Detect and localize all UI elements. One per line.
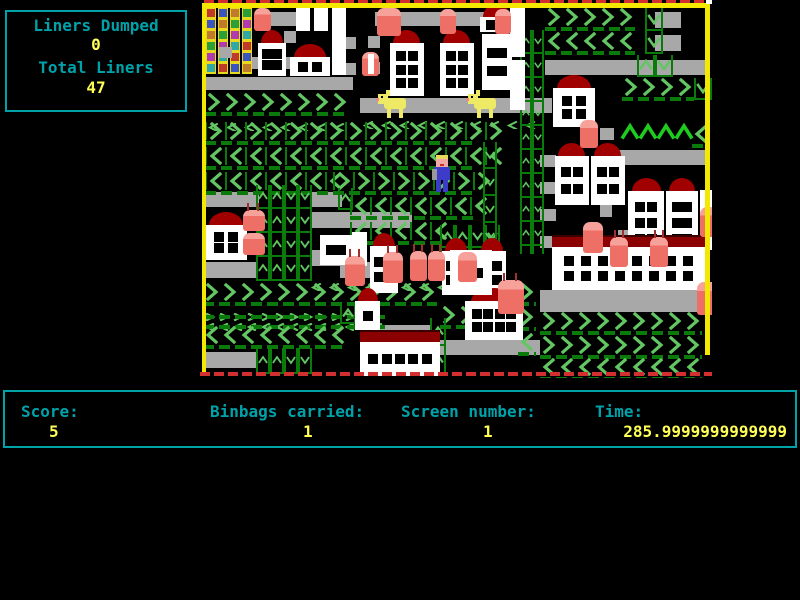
up-chevron-icon (342, 303, 354, 324)
building (390, 30, 424, 96)
flats-window (207, 64, 215, 72)
chevron-icon (245, 316, 259, 324)
down-chevron-icon (300, 257, 310, 281)
chevron-icon (259, 306, 273, 314)
liner-stripe (368, 54, 374, 74)
binbags-label: Binbags carried: (210, 402, 364, 421)
window (562, 109, 572, 119)
chevron-row-l (545, 32, 635, 50)
building-body (296, 5, 310, 31)
building-roof (209, 212, 243, 225)
dog-eye (471, 96, 473, 98)
window (497, 66, 507, 76)
chevron-row-r (333, 172, 493, 190)
building-body (258, 43, 286, 76)
chevron-icon (666, 312, 684, 330)
building-body (314, 5, 328, 31)
down-chevron-icon (485, 196, 495, 223)
window (396, 51, 406, 61)
flats-column (230, 7, 240, 74)
building-body (390, 43, 424, 96)
dog-leg (489, 109, 493, 118)
chevron-icon (640, 78, 658, 96)
building (552, 235, 705, 290)
building-body (332, 5, 346, 31)
binbag (458, 252, 477, 282)
flats-building (206, 7, 254, 74)
binbag-antenna (247, 203, 249, 211)
window (682, 218, 692, 228)
dog-sprite (378, 92, 410, 118)
building (332, 5, 346, 31)
flats-window (207, 20, 215, 28)
chevron-icon (325, 147, 345, 165)
flats-window (207, 31, 215, 39)
chevron-icon (485, 122, 505, 140)
chevron-icon (405, 122, 425, 140)
chevron-icon (666, 336, 684, 354)
binbag-antenna (257, 203, 259, 211)
total-liners-label: Total Liners (7, 58, 185, 77)
chevron-icon (545, 8, 563, 26)
dog-leg (387, 109, 391, 118)
chevron-icon (259, 93, 277, 111)
chevron-icon (311, 326, 329, 344)
track-dash-strip (545, 27, 635, 31)
flats-window (207, 42, 215, 50)
chevron-icon (231, 306, 245, 314)
binbag-antenna (358, 249, 360, 257)
binbag (650, 237, 668, 267)
window (363, 311, 373, 321)
building-body (510, 60, 525, 110)
chevron-icon (315, 316, 329, 324)
up-chevron-icon (258, 257, 268, 281)
chevron-icon (465, 122, 485, 140)
window (576, 96, 586, 106)
down-chevron-icon (286, 209, 296, 233)
flats-window (231, 20, 239, 28)
down-chevron-icon (286, 348, 296, 374)
vertical-track-down (284, 348, 298, 374)
building (296, 5, 310, 31)
chevron-row-u (620, 122, 692, 142)
chevron-icon (617, 8, 635, 26)
chevron-icon (599, 8, 617, 26)
chevron-icon (599, 32, 617, 50)
binbag-antenna (515, 273, 517, 281)
chevron-icon (676, 78, 694, 96)
window (666, 271, 676, 281)
binbag-antenna (662, 230, 664, 238)
building (205, 212, 247, 260)
chevron-icon (617, 32, 635, 50)
chevron-icon (612, 336, 630, 354)
window (336, 245, 346, 255)
chevron-icon (648, 312, 666, 330)
dog-nose (376, 98, 379, 101)
chevron-icon (225, 172, 245, 190)
conveyor-belt (540, 290, 698, 312)
binbag (498, 280, 524, 314)
chevron-icon (313, 93, 331, 111)
player-arm (432, 169, 437, 180)
down-chevron-icon (300, 185, 310, 209)
up-chevron-icon (258, 348, 268, 374)
dog-nose (466, 98, 469, 101)
window (598, 256, 608, 266)
score-label: Score: (21, 402, 79, 421)
building-body (591, 156, 625, 205)
flats-window (231, 53, 239, 61)
chevron-icon (265, 147, 285, 165)
conveyor-belt (368, 36, 380, 48)
window (492, 261, 502, 271)
flats-window (243, 42, 251, 50)
binbag (583, 222, 603, 253)
up-chevron-icon (340, 188, 351, 210)
flats-window (243, 53, 251, 61)
chevron-icon (622, 78, 640, 96)
chevron-icon (275, 283, 293, 301)
building (258, 30, 286, 76)
window (635, 218, 645, 228)
vertical-track-up (338, 188, 353, 210)
building (355, 288, 380, 330)
chevron-icon (350, 197, 370, 215)
window (647, 218, 657, 228)
building-roof (358, 288, 378, 301)
game-area[interactable] (200, 0, 712, 378)
binbag-antenna (503, 273, 505, 281)
flats-window (219, 64, 227, 72)
playfield-corner-notch (706, 0, 712, 4)
player-leg (443, 180, 448, 192)
building-body (510, 5, 525, 57)
chevron-icon (558, 312, 576, 330)
chevron-icon (453, 172, 473, 190)
dog-ear (476, 90, 480, 96)
building-roof (557, 75, 591, 88)
down-chevron-icon (485, 142, 495, 169)
window (632, 256, 642, 266)
dog-sprite (468, 92, 500, 118)
chevron-icon (413, 172, 433, 190)
chevron-icon (275, 326, 293, 344)
chevron-icon (301, 316, 315, 324)
window (615, 271, 625, 281)
game-screen: Liners Dumped 0 Total Liners 47 Score: 5… (0, 0, 800, 600)
chevron-icon (225, 147, 245, 165)
chevron-row-r (540, 336, 702, 354)
window (649, 271, 659, 281)
chevron-icon (563, 32, 581, 50)
chevron-icon (315, 306, 329, 314)
window (472, 322, 482, 332)
up-chevron-icon (272, 209, 282, 233)
window (214, 243, 224, 253)
player-leg (436, 180, 441, 192)
down-chevron-icon (286, 185, 296, 209)
up-chevron-icon (639, 55, 653, 77)
window (487, 48, 497, 58)
up-chevron-icon (272, 257, 282, 281)
building (332, 31, 346, 75)
player-sprite (432, 155, 452, 193)
building-roof (632, 178, 661, 191)
chevron-icon (293, 326, 311, 344)
building-body (205, 225, 247, 260)
building-body (290, 57, 330, 76)
building (440, 30, 474, 96)
up-chevron-icon (272, 233, 282, 257)
chevron-icon (305, 122, 325, 140)
window (683, 256, 693, 266)
building-roof (294, 44, 326, 57)
window (573, 167, 583, 177)
vertical-track-down (298, 348, 312, 374)
flats-window (207, 9, 215, 17)
flats-window (243, 31, 251, 39)
building (510, 60, 525, 110)
chevron-icon (225, 122, 245, 140)
liners-dumped-value: 0 (7, 35, 185, 54)
chevron-icon (245, 122, 265, 140)
window (446, 65, 456, 75)
building-roof (669, 178, 695, 191)
track-dash-strip (205, 141, 475, 145)
chevron-icon (326, 276, 344, 284)
window (573, 184, 583, 194)
chevron-icon (329, 326, 347, 344)
liners-hud-panel: Liners Dumped 0 Total Liners 47 (5, 10, 187, 112)
flats-column (242, 7, 252, 74)
binbag-antenna (439, 244, 441, 252)
dog-leg (477, 109, 481, 118)
dog-eye (381, 96, 383, 98)
window (581, 271, 591, 281)
binbag (254, 8, 271, 31)
chevron-icon (257, 326, 275, 344)
window (561, 167, 571, 177)
chevron-icon (385, 122, 405, 140)
chevron-icon (414, 114, 432, 122)
vertical-track-up (256, 348, 270, 374)
building-body (440, 43, 474, 96)
chevron-icon (365, 122, 385, 140)
window (272, 60, 282, 70)
flats-window (219, 9, 227, 17)
down-chevron-icon (647, 31, 661, 54)
screen-number-value: 1 (483, 422, 493, 441)
vertical-track-down (298, 185, 312, 281)
chevron-icon (612, 312, 630, 330)
screen-number-label: Screen number: (401, 402, 536, 421)
binbag (243, 210, 265, 231)
track-dash-strip (350, 216, 476, 220)
track-dash-strip (540, 331, 702, 335)
flats-window (207, 53, 215, 61)
chevron-icon (432, 114, 450, 122)
flats-window (231, 64, 239, 72)
down-chevron-icon (534, 198, 542, 222)
down-chevron-icon (534, 30, 542, 54)
building (591, 143, 625, 205)
chevron-icon (239, 283, 257, 301)
flats-window (231, 42, 239, 50)
flats-window (219, 31, 227, 39)
window (632, 271, 642, 281)
building (314, 5, 328, 31)
vertical-track-up (340, 303, 356, 324)
track-dash-strip (518, 352, 536, 356)
chevron-icon (325, 122, 345, 140)
chevron-icon (295, 93, 313, 111)
chevron-icon (239, 326, 257, 344)
window (446, 51, 456, 61)
conveyor-belt (600, 205, 612, 217)
window (483, 322, 493, 332)
down-chevron-icon (485, 169, 495, 196)
chevron-icon (331, 93, 349, 111)
chevron-icon (345, 147, 365, 165)
down-chevron-icon (534, 78, 542, 102)
score-value: 5 (49, 422, 59, 441)
chevron-icon (273, 316, 287, 324)
building-body (552, 247, 705, 290)
flats-window (219, 20, 227, 28)
window (408, 78, 418, 88)
chevron-row-l (205, 147, 505, 165)
up-chevron-icon (272, 185, 282, 209)
chevron-row-l (350, 197, 490, 215)
binbag-antenna (654, 230, 656, 238)
window (576, 109, 586, 119)
chevron-icon (465, 147, 485, 165)
building (360, 330, 440, 376)
window (497, 48, 507, 58)
window (683, 271, 693, 281)
binbag (383, 252, 403, 283)
window (396, 65, 406, 75)
binbag (377, 8, 401, 36)
chevron-icon (285, 147, 305, 165)
flats-gray-notch (219, 47, 232, 58)
chevron-icon (353, 172, 373, 190)
chevron-icon (305, 147, 325, 165)
binbag (428, 251, 445, 281)
chevron-icon (594, 312, 612, 330)
binbag (580, 120, 598, 148)
status-bar: Score: 5 Binbags carried: 1 Screen numbe… (3, 390, 797, 448)
window (495, 322, 505, 332)
vertical-track-down (655, 55, 673, 77)
chevron-icon (648, 336, 666, 354)
building-body (355, 301, 380, 330)
vertical-track-down (483, 142, 497, 252)
playfield-bottom-red-dashes (200, 372, 712, 376)
time-label: Time: (595, 402, 643, 421)
flats-column (206, 7, 216, 74)
down-chevron-icon (657, 55, 671, 77)
chevron-row-l (203, 326, 347, 344)
window (382, 354, 392, 364)
binbag (362, 52, 379, 76)
chevron-icon (425, 122, 445, 140)
vertical-track-down (645, 8, 663, 54)
conveyor-belt (203, 352, 257, 368)
flats-window (243, 20, 251, 28)
chevron-icon (265, 122, 285, 140)
chevron-icon (205, 172, 225, 190)
chevron-icon (545, 32, 563, 50)
window (635, 202, 645, 212)
chevron-icon (360, 114, 378, 122)
down-chevron-icon (300, 209, 310, 233)
binbag-antenna (614, 230, 616, 238)
down-chevron-icon (647, 8, 661, 31)
chevron-icon (373, 172, 393, 190)
binbag (440, 9, 456, 34)
down-chevron-icon (534, 54, 542, 78)
track-dash-strip (540, 377, 702, 378)
binbag-antenna (622, 230, 624, 238)
window (609, 184, 619, 194)
window (647, 202, 657, 212)
up-chevron-icon (258, 185, 268, 209)
chevron-icon (405, 147, 425, 165)
total-liners-value: 47 (7, 78, 185, 97)
chevron-icon (638, 122, 656, 142)
window (483, 309, 493, 319)
chevron-icon (410, 197, 430, 215)
chevron-icon (540, 336, 558, 354)
chevron-icon (221, 326, 239, 344)
down-chevron-icon (286, 233, 296, 257)
chevron-icon (563, 8, 581, 26)
vertical-track-down (284, 185, 298, 281)
chevron-icon (385, 147, 405, 165)
flats-window (243, 9, 251, 17)
chevron-icon (345, 122, 365, 140)
chevron-icon (223, 93, 241, 111)
track-dash-strip (545, 51, 635, 55)
window (368, 354, 378, 364)
conveyor-belt (203, 262, 257, 278)
binbag (495, 9, 511, 34)
vertical-track-up (637, 55, 655, 77)
chevron-icon (221, 283, 239, 301)
down-chevron-icon (534, 150, 542, 174)
window (561, 184, 571, 194)
window (422, 354, 432, 364)
chevron-row-r (205, 93, 349, 111)
chevron-icon (581, 8, 599, 26)
window (395, 354, 405, 364)
chevron-icon (245, 306, 259, 314)
window (581, 256, 591, 266)
chevron-icon (277, 93, 295, 111)
down-chevron-icon (300, 233, 310, 257)
building-body (482, 34, 512, 90)
chevron-icon (410, 222, 430, 240)
up-chevron-icon (522, 198, 530, 222)
window (562, 96, 572, 106)
chevron-icon (430, 197, 450, 215)
window (396, 78, 406, 88)
building (555, 143, 589, 205)
window (472, 309, 482, 319)
